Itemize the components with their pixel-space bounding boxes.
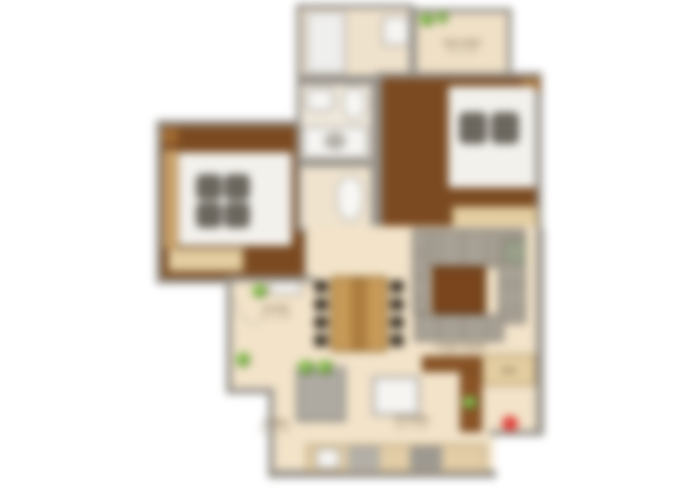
counter-appliance-icon	[348, 446, 380, 471]
dining-chair-icon	[390, 316, 404, 329]
floor-plan-screenshot: BALCONY 7'6" X 4'0"	[0, 0, 700, 488]
balcony-dims: 7'6" X 4'0"	[428, 48, 498, 56]
pillow-icon	[491, 112, 519, 144]
plant-icon	[419, 13, 434, 26]
table-runner-icon	[351, 278, 367, 350]
wall	[226, 276, 232, 394]
floor-plan: BALCONY 7'6" X 4'0"	[0, 0, 700, 488]
pillow-icon	[196, 174, 222, 200]
plant-icon	[317, 360, 333, 374]
balcony-label: BALCONY 7'6" X 4'0"	[428, 40, 498, 56]
passage-dims: 5'0" X 4'0"	[252, 428, 298, 436]
fridge-label: REF.	[488, 368, 532, 376]
red-watermark-icon	[502, 416, 518, 431]
wall	[490, 430, 542, 436]
dining-chair-icon	[390, 298, 404, 311]
foyer-name: FOYER	[263, 306, 289, 313]
fridge-name: REF.	[502, 368, 519, 375]
nightstand-icon	[162, 128, 178, 144]
pillow-icon	[224, 174, 250, 200]
wall	[536, 228, 544, 436]
coffee-table-icon	[432, 266, 486, 314]
dining-chair-icon	[314, 280, 328, 293]
wardrobe-icon	[452, 206, 538, 228]
basin-bowl-icon	[324, 132, 346, 150]
sink-icon	[316, 448, 340, 469]
hob-stove-icon	[410, 446, 442, 471]
headboard-icon	[164, 150, 178, 248]
sofa-arm-left-icon	[412, 228, 430, 314]
shoe-cabinet-icon	[269, 281, 302, 295]
dining-chair-icon	[314, 334, 328, 347]
dining-chair-icon	[314, 316, 328, 329]
pillow-icon	[459, 112, 487, 144]
dining-chair-icon	[390, 280, 404, 293]
kitchen-name: KITCHEN	[395, 416, 429, 423]
bench-wardrobe-icon	[168, 248, 244, 272]
pillow-icon	[224, 202, 250, 228]
dining-chair-icon	[390, 334, 404, 347]
kitchen-label: KITCHEN 10'0" X 8'0"	[376, 416, 448, 432]
tv-console-icon	[414, 314, 504, 342]
plant-icon	[463, 396, 477, 409]
side-table-icon	[504, 240, 526, 264]
kitchen-island-icon	[372, 376, 420, 416]
foyer-dims: 5'6" X 4'6"	[248, 314, 304, 322]
kitchen-shelf-icon	[296, 366, 346, 422]
toilet-icon	[336, 176, 364, 222]
foyer-label: FOYER 5'6" X 4'6"	[248, 306, 304, 322]
plant-icon	[436, 12, 448, 23]
toilet-icon	[342, 86, 366, 120]
balcony-name: BALCONY	[444, 40, 481, 47]
kitchen-dims: 10'0" X 8'0"	[376, 424, 448, 432]
wall	[226, 388, 274, 394]
passage-name: STORE	[262, 420, 288, 427]
passage-label: STORE 5'0" X 4'0"	[252, 420, 298, 436]
washbasin-icon	[306, 88, 334, 112]
living-name: LIVING ROOM	[434, 344, 485, 351]
dining-table-icon	[330, 276, 388, 352]
pillow-icon	[196, 202, 222, 228]
dining-chair-icon	[314, 298, 328, 311]
shower-icon	[306, 12, 346, 74]
plant-icon	[298, 360, 314, 374]
plant-icon	[252, 284, 267, 298]
washing-machine-icon	[382, 16, 410, 46]
plant-icon	[236, 352, 250, 367]
